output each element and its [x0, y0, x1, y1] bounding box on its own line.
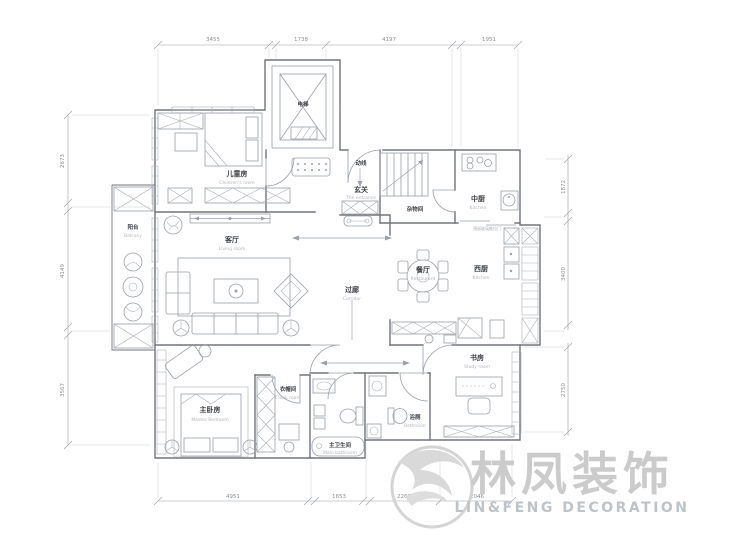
label-study: 书房	[470, 353, 484, 362]
table-icon	[123, 277, 143, 297]
stairs-icon	[380, 153, 428, 196]
stool-icon	[284, 442, 294, 452]
balcony-outline	[112, 185, 155, 350]
dimension-right: 1872 3400 2750	[561, 155, 572, 436]
label-corridor: 过廊	[345, 285, 359, 294]
dim-left-3: 3567	[60, 383, 66, 397]
master-furniture	[157, 344, 257, 457]
label-kitchen-west: 西厨	[474, 264, 488, 273]
label-sliding-door: 预留玻璃推拉门	[473, 225, 501, 231]
watermark-en: LIN&FENG DECORATION	[454, 500, 689, 516]
watermark: 林凤装饰 LIN&FENG DECORATION	[392, 447, 690, 527]
dimension-lines: 3455 1738 4197 1951 2673 4149 3567 1872 …	[60, 37, 572, 505]
children-door-icon	[266, 158, 294, 186]
chair-icon	[124, 303, 142, 321]
dim-right-1: 1872	[561, 180, 567, 194]
floor-plan-svg: 电梯 儿童房 Children's room 动线 玄关 The entranc…	[0, 0, 740, 555]
dim-bottom-2: 1653	[332, 494, 346, 500]
sublabel-balcony: Balcony	[124, 233, 142, 239]
dining-table-icon	[407, 260, 439, 292]
sublabel-entrance: The entrance	[345, 195, 376, 201]
sublabel-main-bath: Main bathroom	[323, 450, 357, 456]
dim-top-3: 4197	[382, 37, 396, 43]
window-bench-icon	[444, 426, 514, 437]
sink-icon	[367, 424, 381, 438]
desk-icon	[456, 377, 502, 396]
toilet-icon	[340, 409, 356, 423]
armchair-icon	[283, 320, 299, 336]
watermark-zh: 林凤装饰	[470, 447, 674, 501]
dim-bottom-1: 4951	[226, 494, 240, 500]
label-cloak: 衣帽间	[280, 385, 297, 393]
piano-icon	[292, 158, 330, 176]
bath-furniture	[367, 376, 407, 438]
chaise-icon	[164, 344, 204, 379]
wardrobe-icon	[157, 350, 166, 454]
study-door-icon	[423, 345, 453, 375]
dim-left-2: 4149	[60, 264, 66, 278]
label-elevator: 电梯	[297, 100, 309, 108]
label-entrance: 玄关	[354, 185, 368, 194]
chair-icon	[468, 398, 490, 414]
label-master: 主卧房	[200, 405, 221, 414]
rug-icon	[178, 258, 290, 316]
living-furniture	[164, 214, 308, 336]
sublabel-children: Children's room	[219, 180, 254, 186]
shoe-cabinet-icon	[342, 201, 378, 214]
chair-icon	[124, 253, 142, 271]
dimension-top: 3455 1738 4197 1951	[154, 37, 522, 49]
armchair-icon	[173, 320, 189, 336]
label-bath: 浴厕	[409, 413, 421, 421]
sublabel-living: Living room	[219, 246, 245, 252]
bath-door-icon	[400, 373, 428, 401]
closet-icon	[257, 377, 275, 452]
dimension-left: 2673 4149 3567	[60, 111, 72, 449]
label-circulation: 动线	[355, 159, 367, 167]
label-balcony: 阳台	[127, 223, 139, 231]
side-table-icon	[274, 274, 308, 308]
floor-plan-canvas: 电梯 儿童房 Children's room 动线 玄关 The entranc…	[0, 0, 740, 555]
sublabel-cloak: Cloak room	[275, 395, 301, 401]
built-in-closet-icon	[522, 228, 538, 343]
sliding-door	[460, 221, 516, 225]
sublabel-bath: Bathroom	[404, 423, 426, 429]
label-main-bath: 主卫生间	[329, 441, 352, 449]
sublabel-kitchen-cn: Kitchen	[470, 205, 487, 211]
balcony-furniture	[114, 187, 153, 348]
dim-left-1: 2673	[60, 154, 66, 168]
sublabel-dining: Restaurant	[411, 276, 436, 282]
sublabel-kitchen-west: Kitchen	[473, 275, 490, 281]
sublabel-study: Study room	[464, 364, 490, 370]
armchair-icon	[165, 440, 179, 454]
bed-icon	[181, 394, 241, 456]
label-kitchen-cn: 中厨	[471, 194, 485, 203]
dim-right-3: 2750	[561, 383, 567, 397]
label-children: 儿童房	[226, 169, 248, 178]
children-room-furniture	[158, 113, 290, 203]
sublabel-master: Master Bedroom	[191, 417, 228, 423]
toilet-icon	[393, 409, 407, 424]
dim-right-2: 3400	[561, 267, 567, 281]
dim-top-2: 1738	[294, 37, 308, 43]
dining-furniture	[392, 250, 456, 343]
dresser-icon	[279, 424, 299, 440]
master-door-icon	[310, 345, 340, 375]
plant-icon	[164, 216, 182, 234]
kitchen-west-furniture	[458, 228, 538, 343]
dim-top-1: 3455	[206, 37, 220, 43]
sublabel-corridor: Corridor	[343, 296, 361, 302]
mainbath-door-icon	[328, 373, 354, 399]
washer-icon	[369, 376, 386, 396]
plant-icon	[425, 335, 433, 343]
window-top-children	[172, 107, 254, 113]
dim-top-4: 1951	[482, 37, 496, 43]
storage-door-icon	[433, 190, 455, 212]
label-storage: 杂物间	[407, 205, 424, 213]
label-dining: 餐厅	[415, 265, 430, 274]
bed-icon	[205, 113, 262, 166]
label-living: 客厅	[224, 235, 239, 244]
